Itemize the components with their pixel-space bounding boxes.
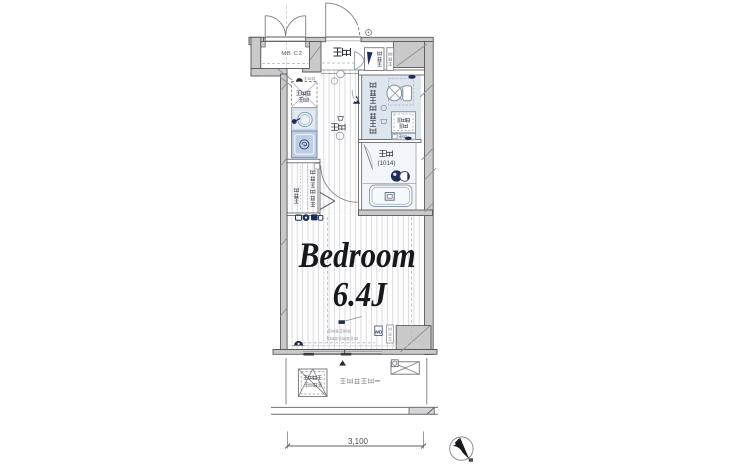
svg-text:WD: WD (375, 329, 383, 334)
svg-text:(1014): (1014) (378, 160, 396, 167)
svg-text:6.4J: 6.4J (333, 275, 388, 314)
svg-text:3,100: 3,100 (348, 437, 369, 446)
svg-text:MB C2: MB C2 (281, 51, 302, 57)
svg-text:Bedroom: Bedroom (298, 235, 416, 275)
